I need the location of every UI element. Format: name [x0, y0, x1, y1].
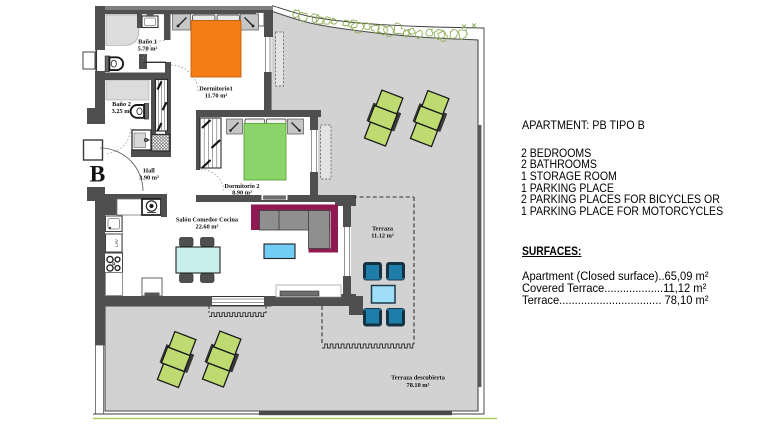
svg-text:3.25 m²: 3.25 m²: [112, 108, 132, 115]
svg-text:8.90 m²: 8.90 m²: [232, 189, 252, 196]
svg-text:5.70 m²: 5.70 m²: [138, 46, 158, 53]
svg-text:Dormitorio1: Dormitorio1: [199, 86, 233, 93]
svg-text:3.90 m²: 3.90 m²: [139, 175, 159, 182]
svg-text:11.12 m²: 11.12 m²: [371, 233, 394, 240]
svg-text:Salón Comedor Cocina: Salón Comedor Cocina: [176, 217, 239, 224]
svg-text:11.70 m²: 11.70 m²: [205, 93, 228, 100]
svg-text:Terraza descubierta: Terraza descubierta: [391, 375, 446, 382]
svg-text:78.10 m²: 78.10 m²: [407, 382, 430, 389]
svg-text:LAV: LAV: [114, 239, 119, 247]
svg-text:22.60 m²: 22.60 m²: [196, 224, 219, 231]
svg-text:Hall: Hall: [143, 168, 155, 175]
svg-text:B: B: [90, 162, 106, 188]
svg-text:Terraza: Terraza: [372, 226, 394, 233]
svg-text:Baño 2: Baño 2: [112, 101, 131, 108]
svg-text:Baño 1: Baño 1: [138, 39, 157, 46]
